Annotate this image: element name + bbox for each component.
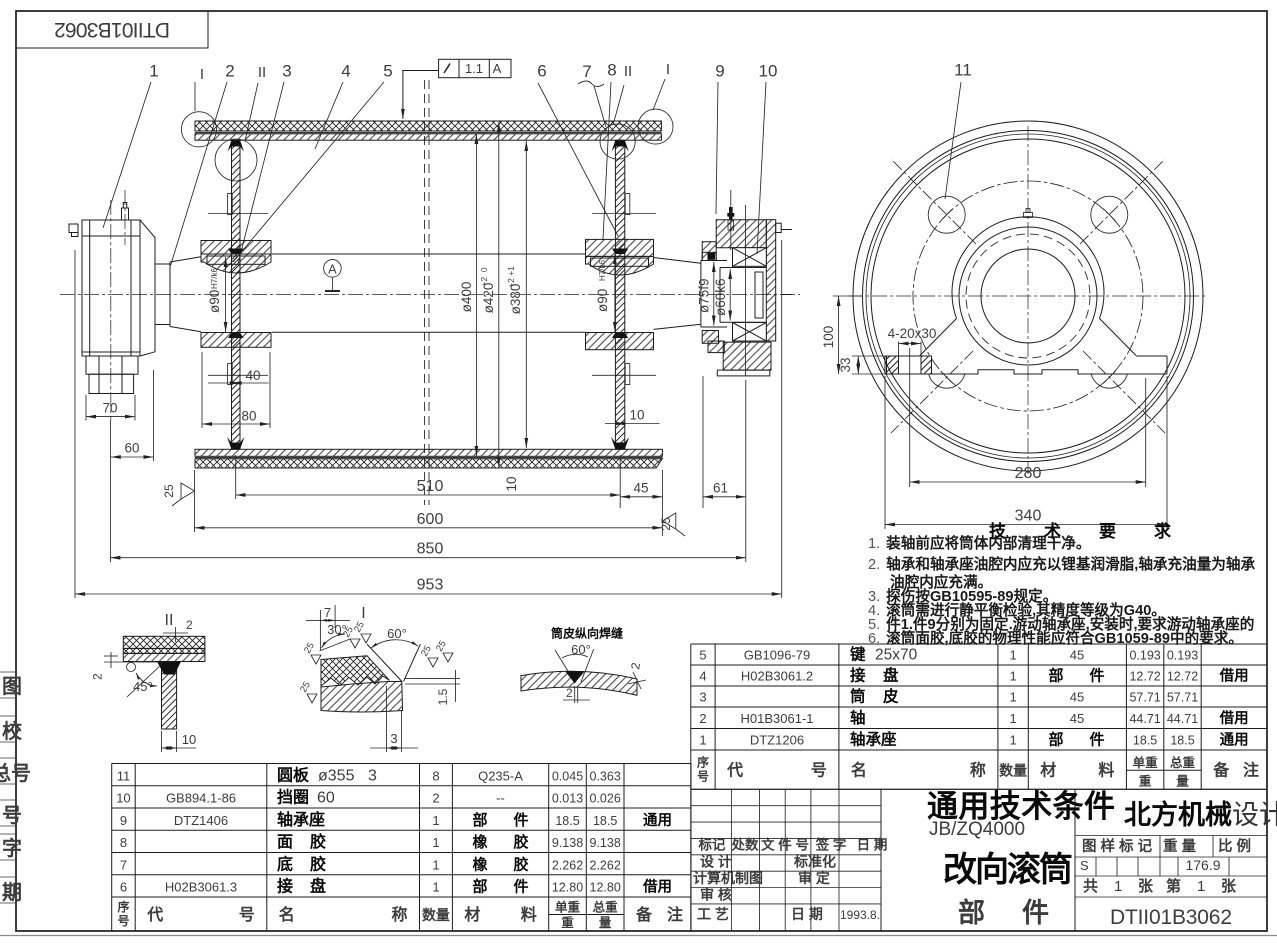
svg-text:件: 件 xyxy=(1089,667,1104,685)
svg-text:1: 1 xyxy=(699,733,706,748)
svg-text:比 例: 比 例 xyxy=(1218,837,1251,855)
svg-text:10: 10 xyxy=(504,476,519,491)
svg-text:176.9: 176.9 xyxy=(1185,857,1220,873)
svg-text:张: 张 xyxy=(1138,878,1154,895)
svg-text:1: 1 xyxy=(1009,733,1016,748)
svg-text:9.138: 9.138 xyxy=(590,836,621,850)
svg-text:10: 10 xyxy=(759,62,778,81)
svg-text:总重: 总重 xyxy=(1170,755,1196,770)
svg-text:部: 部 xyxy=(472,878,487,896)
svg-text:名: 名 xyxy=(851,761,867,780)
svg-text:重: 重 xyxy=(561,915,574,930)
svg-text:II: II xyxy=(165,612,174,629)
svg-text:2: 2 xyxy=(225,62,234,81)
svg-text:0.363: 0.363 xyxy=(590,770,621,784)
svg-text:日 期: 日 期 xyxy=(857,838,888,853)
svg-text:S: S xyxy=(1080,858,1089,873)
svg-text:北方机械设计: 北方机械设计 xyxy=(1124,799,1277,830)
svg-text:1: 1 xyxy=(1009,711,1016,726)
svg-text:33: 33 xyxy=(838,357,853,372)
svg-text:6: 6 xyxy=(537,62,546,81)
svg-text:1: 1 xyxy=(1009,648,1016,663)
svg-text:签 字: 签 字 xyxy=(815,837,847,853)
svg-text:80: 80 xyxy=(241,409,256,424)
svg-text:3: 3 xyxy=(699,690,706,705)
svg-text:2: 2 xyxy=(566,686,573,700)
svg-text:共: 共 xyxy=(1083,878,1098,895)
svg-text:0.045: 0.045 xyxy=(552,770,583,784)
svg-text:2.262: 2.262 xyxy=(590,858,621,872)
svg-text:12.80: 12.80 xyxy=(590,881,621,895)
svg-text:25: 25 xyxy=(659,517,673,531)
svg-text:借用: 借用 xyxy=(1219,667,1249,685)
svg-text:+2 0: +2 0 xyxy=(479,267,489,286)
svg-text:12.80: 12.80 xyxy=(552,881,583,895)
svg-text:校: 校 xyxy=(2,719,23,743)
svg-text:5: 5 xyxy=(699,648,706,663)
svg-text:图 样 标 记: 图 样 标 记 xyxy=(1082,837,1153,855)
svg-text:接: 接 xyxy=(277,877,293,896)
svg-text:总号: 总号 xyxy=(0,761,31,785)
svg-text:代: 代 xyxy=(146,905,163,924)
svg-text:轴: 轴 xyxy=(850,708,866,727)
svg-text:12.72: 12.72 xyxy=(1129,670,1160,684)
svg-text:10: 10 xyxy=(629,408,644,423)
svg-text:H7/k6: H7/k6 xyxy=(210,268,219,289)
svg-text:部: 部 xyxy=(1048,667,1063,685)
svg-text:A: A xyxy=(493,61,502,76)
svg-text:通用: 通用 xyxy=(643,812,672,829)
svg-text:7: 7 xyxy=(324,605,331,620)
svg-text:1.1: 1.1 xyxy=(465,61,483,76)
svg-text:胶: 胶 xyxy=(310,832,326,851)
svg-text:标记: 标记 xyxy=(698,837,727,853)
svg-text:8: 8 xyxy=(607,61,616,80)
svg-text:数量: 数量 xyxy=(422,907,450,923)
svg-text:45: 45 xyxy=(633,481,648,496)
svg-text:借用: 借用 xyxy=(1219,709,1249,727)
svg-text:0.193: 0.193 xyxy=(1129,649,1160,663)
svg-text:总重: 总重 xyxy=(593,900,619,915)
svg-text:510: 510 xyxy=(417,478,444,495)
svg-text:8: 8 xyxy=(432,769,439,784)
svg-text:橡: 橡 xyxy=(472,833,488,851)
svg-text:44.71: 44.71 xyxy=(1167,712,1198,726)
svg-text:57.71: 57.71 xyxy=(1167,691,1198,705)
svg-text:ø90: ø90 xyxy=(595,289,610,312)
svg-text:量: 量 xyxy=(1176,774,1189,788)
svg-text:重 量: 重 量 xyxy=(1163,837,1197,855)
svg-text:DTZ1206: DTZ1206 xyxy=(750,733,804,748)
svg-text:10: 10 xyxy=(116,791,130,806)
svg-text:名: 名 xyxy=(279,905,295,924)
svg-text:6: 6 xyxy=(120,880,127,895)
svg-text:号: 号 xyxy=(811,762,827,780)
svg-text:I: I xyxy=(361,605,365,622)
svg-text:ø90: ø90 xyxy=(207,290,222,313)
svg-text:挡圈: 挡圈 xyxy=(277,788,309,807)
svg-text:圆板: 圆板 xyxy=(277,766,310,785)
svg-text:DTII01B3062: DTII01B3062 xyxy=(1110,906,1232,929)
svg-text:2.轴承和轴承座油腔内应充以锂基润滑脂,轴承充油量为轴承: 2.轴承和轴承座油腔内应充以锂基润滑脂,轴承充油量为轴承 xyxy=(868,555,1255,573)
svg-text:号: 号 xyxy=(2,804,22,827)
svg-text:审 核: 审 核 xyxy=(700,887,732,903)
svg-text:部: 部 xyxy=(958,897,985,928)
svg-text:GB894.1-86: GB894.1-86 xyxy=(166,791,236,806)
svg-text:号: 号 xyxy=(239,906,255,924)
svg-text:材: 材 xyxy=(464,905,480,924)
svg-text:H02B3061.2: H02B3061.2 xyxy=(741,669,813,684)
svg-text:1: 1 xyxy=(432,857,439,872)
svg-text:标准化: 标准化 xyxy=(793,854,836,870)
svg-text:部: 部 xyxy=(1048,731,1063,749)
svg-text:日 期: 日 期 xyxy=(791,906,823,922)
svg-text:1993.8.: 1993.8. xyxy=(840,908,880,922)
svg-text:材: 材 xyxy=(1040,761,1056,780)
svg-text:胶: 胶 xyxy=(310,854,326,873)
svg-text:号: 号 xyxy=(697,769,709,784)
svg-text:3: 3 xyxy=(368,768,377,785)
svg-text:单重: 单重 xyxy=(555,900,581,915)
svg-text:70: 70 xyxy=(102,401,117,416)
svg-text:9: 9 xyxy=(715,62,724,81)
svg-text:9: 9 xyxy=(120,813,127,828)
svg-text:H01B3061-1: H01B3061-1 xyxy=(741,711,814,726)
svg-text:280: 280 xyxy=(1015,465,1042,482)
svg-text:面: 面 xyxy=(277,833,293,851)
svg-text:2: 2 xyxy=(186,618,193,632)
svg-text:代: 代 xyxy=(726,761,743,780)
svg-text:3: 3 xyxy=(390,731,397,746)
svg-text:改向滚筒: 改向滚筒 xyxy=(943,851,1073,889)
svg-text:盘: 盘 xyxy=(883,666,899,685)
svg-text:备: 备 xyxy=(635,905,653,924)
svg-text:9.138: 9.138 xyxy=(552,836,583,850)
svg-text:2: 2 xyxy=(432,791,439,806)
svg-text:953: 953 xyxy=(417,577,444,594)
svg-text:称: 称 xyxy=(392,905,408,924)
svg-text:1: 1 xyxy=(432,835,439,850)
svg-text:轴承座: 轴承座 xyxy=(850,730,897,749)
svg-text:审 定: 审 定 xyxy=(798,870,830,886)
svg-text:单重: 单重 xyxy=(1133,755,1159,770)
svg-text:计算机制图: 计算机制图 xyxy=(693,870,763,886)
svg-text:张: 张 xyxy=(1221,878,1237,895)
svg-text:H02B3061.3: H02B3061.3 xyxy=(165,880,237,895)
svg-text:1: 1 xyxy=(432,880,439,895)
svg-text:600: 600 xyxy=(417,511,444,528)
svg-text:4: 4 xyxy=(699,669,706,684)
svg-text:JB/ZQ4000: JB/ZQ4000 xyxy=(929,819,1025,840)
svg-text:工 艺: 工 艺 xyxy=(697,906,729,922)
svg-text:850: 850 xyxy=(417,541,444,558)
svg-text:备: 备 xyxy=(1212,761,1230,780)
svg-text:ø60k6: ø60k6 xyxy=(713,278,728,316)
svg-text:60: 60 xyxy=(124,441,139,456)
svg-text:1: 1 xyxy=(149,62,158,81)
svg-text:注: 注 xyxy=(667,905,683,924)
svg-text:25: 25 xyxy=(162,484,176,498)
svg-text:盘: 盘 xyxy=(310,877,326,896)
svg-text:2: 2 xyxy=(699,711,706,726)
svg-text:键: 键 xyxy=(849,645,866,664)
svg-text:1.5: 1.5 xyxy=(436,688,450,705)
svg-text:I: I xyxy=(666,61,670,78)
svg-text:胶: 胶 xyxy=(513,833,528,851)
svg-text:橡: 橡 xyxy=(472,855,488,873)
svg-text:7: 7 xyxy=(582,62,591,81)
svg-text:数量: 数量 xyxy=(999,763,1027,779)
svg-text:接: 接 xyxy=(850,666,866,685)
svg-text:10: 10 xyxy=(182,732,196,747)
svg-text:量: 量 xyxy=(599,916,612,930)
svg-text:61: 61 xyxy=(713,481,728,496)
svg-text:件: 件 xyxy=(1022,898,1049,928)
svg-text:45: 45 xyxy=(1070,648,1084,663)
svg-text:ø355: ø355 xyxy=(318,768,355,785)
svg-text:轴承座: 轴承座 xyxy=(277,810,325,829)
svg-text:+2 +1: +2 +1 xyxy=(506,266,516,288)
svg-text:2.262: 2.262 xyxy=(552,858,583,872)
svg-text:料: 料 xyxy=(1098,761,1114,780)
svg-text:1: 1 xyxy=(1009,690,1016,705)
svg-text:7: 7 xyxy=(120,857,127,872)
svg-text:部: 部 xyxy=(472,811,487,829)
svg-text:重: 重 xyxy=(1139,773,1152,788)
svg-text:11: 11 xyxy=(117,769,131,784)
svg-text:期: 期 xyxy=(2,881,22,904)
svg-text:3: 3 xyxy=(282,62,291,81)
svg-text:胶: 胶 xyxy=(513,855,528,873)
svg-text:字: 字 xyxy=(2,836,22,860)
svg-text:件: 件 xyxy=(1089,731,1104,749)
svg-text:18.5: 18.5 xyxy=(593,814,617,828)
svg-text:H7/k6: H7/k6 xyxy=(598,260,607,281)
svg-text:设 计: 设 计 xyxy=(700,854,732,870)
svg-text:5: 5 xyxy=(383,62,392,81)
svg-text:A: A xyxy=(328,263,337,277)
svg-text:第: 第 xyxy=(1166,877,1181,895)
svg-text:57.71: 57.71 xyxy=(1129,691,1160,705)
svg-text:25x70: 25x70 xyxy=(875,647,918,664)
svg-text:60: 60 xyxy=(317,790,335,807)
svg-text:8: 8 xyxy=(120,835,127,850)
svg-text:4: 4 xyxy=(341,62,350,81)
svg-text:借用: 借用 xyxy=(642,878,672,896)
svg-text:件: 件 xyxy=(513,811,528,829)
svg-text:DTZ1406: DTZ1406 xyxy=(174,813,228,828)
svg-text:筒: 筒 xyxy=(849,687,866,706)
svg-text:44.71: 44.71 xyxy=(1129,712,1160,726)
svg-text:序: 序 xyxy=(697,755,709,770)
svg-text:Q235-A: Q235-A xyxy=(478,769,523,784)
svg-text:4-20x30: 4-20x30 xyxy=(888,326,937,341)
svg-text:1: 1 xyxy=(432,813,439,828)
svg-text:0.193: 0.193 xyxy=(1167,649,1198,663)
svg-text:称: 称 xyxy=(970,761,986,780)
svg-text:100: 100 xyxy=(821,326,836,349)
svg-text:II: II xyxy=(624,63,632,80)
svg-text:序: 序 xyxy=(117,899,129,914)
svg-text:DTII01B3062: DTII01B3062 xyxy=(54,18,170,41)
svg-text:通用: 通用 xyxy=(1220,732,1249,749)
svg-text:注: 注 xyxy=(1243,761,1259,780)
svg-text:45: 45 xyxy=(1070,690,1084,705)
svg-text:I: I xyxy=(200,66,204,83)
svg-text:45°: 45° xyxy=(133,679,153,694)
svg-text:处数: 处数 xyxy=(731,837,760,853)
svg-text:件: 件 xyxy=(513,878,528,896)
svg-text:文 件 号: 文 件 号 xyxy=(761,837,809,853)
svg-text:料: 料 xyxy=(521,905,537,924)
svg-text:1: 1 xyxy=(1009,669,1016,684)
svg-text:GB1096-79: GB1096-79 xyxy=(744,648,811,663)
svg-text:18.5: 18.5 xyxy=(555,814,579,828)
svg-text:筒皮纵向焊缝: 筒皮纵向焊缝 xyxy=(551,626,623,641)
svg-text:0.013: 0.013 xyxy=(552,792,583,806)
svg-text:号: 号 xyxy=(117,913,129,928)
svg-text:图: 图 xyxy=(2,675,22,698)
svg-text:45: 45 xyxy=(1070,711,1084,726)
svg-text:18.5: 18.5 xyxy=(1133,734,1157,748)
svg-text:II: II xyxy=(258,64,266,81)
svg-text:底: 底 xyxy=(277,854,293,873)
svg-text:40: 40 xyxy=(245,368,260,383)
svg-text:12.72: 12.72 xyxy=(1167,670,1198,684)
svg-text:1: 1 xyxy=(1114,878,1122,895)
svg-text:ø400: ø400 xyxy=(459,282,474,313)
svg-text:1: 1 xyxy=(1197,878,1205,895)
svg-text:60°: 60° xyxy=(387,626,407,641)
svg-text:皮: 皮 xyxy=(883,687,899,706)
svg-text:11: 11 xyxy=(954,61,972,80)
svg-text:--: -- xyxy=(496,791,505,806)
svg-text:ø75f9: ø75f9 xyxy=(697,278,712,313)
svg-text:1.装轴前应将筒体内部清理干净。: 1.装轴前应将筒体内部清理干净。 xyxy=(868,534,1091,552)
svg-text:2: 2 xyxy=(91,673,105,680)
svg-text:18.5: 18.5 xyxy=(1170,734,1194,748)
svg-text:0.026: 0.026 xyxy=(590,792,621,806)
